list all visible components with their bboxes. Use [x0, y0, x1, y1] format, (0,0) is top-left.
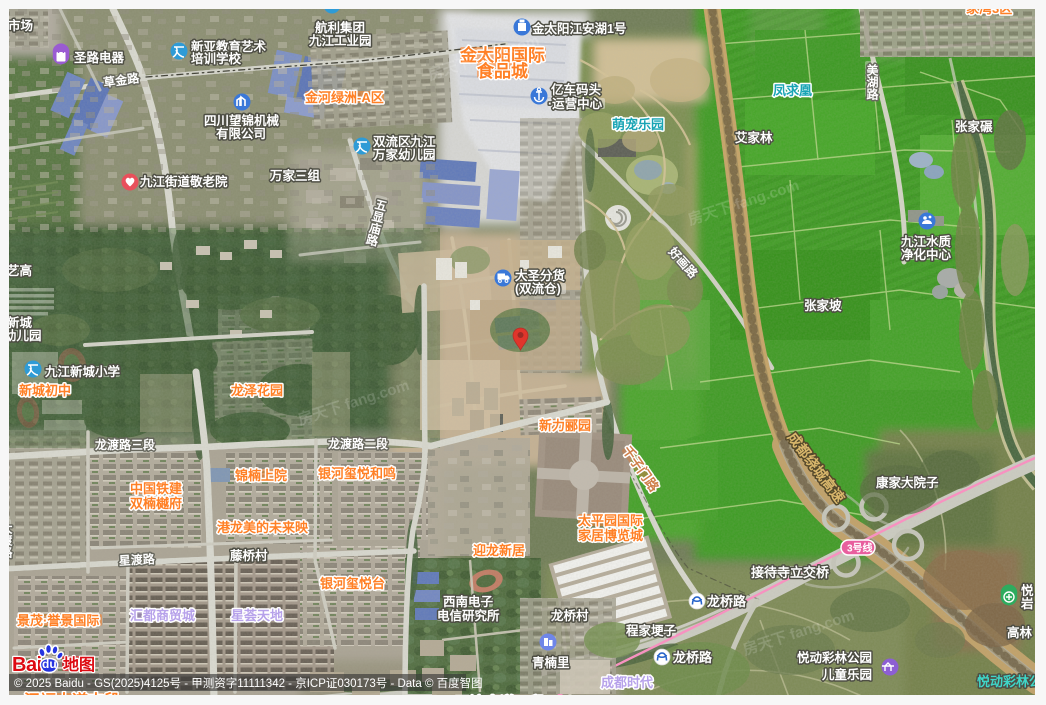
svg-text:悦动彩林公园: 悦动彩林公园 — [797, 650, 872, 665]
svg-text:艺高: 艺高 — [7, 263, 32, 278]
svg-text:藤桥村: 藤桥村 — [229, 548, 268, 563]
svg-text:新城初中: 新城初中 — [19, 383, 71, 398]
svg-text:培训学校: 培训学校 — [191, 51, 242, 66]
svg-text:张家碾: 张家碾 — [955, 119, 993, 134]
svg-text:九江水质: 九江水质 — [900, 234, 952, 249]
svg-text:星荟天地: 星荟天地 — [231, 608, 283, 623]
svg-text:地图: 地图 — [63, 655, 95, 674]
svg-text:市场: 市场 — [8, 18, 33, 33]
svg-text:九江街道敬老院: 九江街道敬老院 — [139, 174, 228, 189]
svg-text:美湖路: 美湖路 — [865, 63, 879, 101]
svg-text:亿车码头: 亿车码头 — [551, 82, 602, 97]
svg-text:幼儿园: 幼儿园 — [4, 328, 42, 343]
svg-text:锦楠上院: 锦楠上院 — [235, 468, 287, 483]
svg-text:双楠樾府: 双楠樾府 — [130, 496, 182, 511]
svg-text:中国铁建: 中国铁建 — [130, 481, 182, 496]
svg-text:净化中心: 净化中心 — [901, 247, 952, 262]
svg-text:龙桥路: 龙桥路 — [673, 650, 713, 665]
svg-text:·运营中心: ·运营中心 — [548, 96, 603, 111]
svg-text:接待寺立交桥: 接待寺立交桥 — [751, 565, 830, 580]
svg-text:龙渡路三段: 龙渡路三段 — [95, 437, 156, 452]
svg-text:九江工业园: 九江工业园 — [308, 33, 372, 48]
svg-text:九江新城小学: 九江新城小学 — [44, 364, 121, 379]
svg-text:万家幼儿园: 万家幼儿园 — [372, 147, 436, 162]
svg-text:银河玺悦台: 银河玺悦台 — [320, 576, 385, 591]
svg-text:凤求凰: 凤求凰 — [773, 83, 812, 98]
svg-text:龙渡路二段: 龙渡路二段 — [328, 436, 389, 451]
svg-text:程家埂子: 程家埂子 — [626, 623, 677, 638]
svg-text:新城: 新城 — [7, 315, 33, 330]
svg-text:龙桥村: 龙桥村 — [550, 608, 589, 623]
svg-text:du: du — [42, 657, 57, 671]
svg-text:西南电子: 西南电子 — [443, 594, 494, 609]
svg-text:汉福大道中段: 汉福大道中段 — [24, 691, 121, 705]
svg-text:大圣分货: 大圣分货 — [515, 268, 566, 283]
svg-text:青楠里: 青楠里 — [532, 655, 570, 670]
svg-text:万家三组: 万家三组 — [269, 168, 321, 183]
svg-text:星渡路: 星渡路 — [118, 551, 156, 568]
svg-text:四川望锦机械: 四川望锦机械 — [204, 113, 280, 128]
svg-text:萌宠乐园: 萌宠乐园 — [612, 117, 664, 132]
svg-text:双流区九江: 双流区九江 — [372, 134, 436, 149]
svg-text:张家坡: 张家坡 — [804, 298, 842, 313]
svg-text:悦动彩林公: 悦动彩林公 — [977, 674, 1042, 689]
svg-text:艾家林: 艾家林 — [735, 130, 773, 145]
svg-text:金河绿洲-A区: 金河绿洲-A区 — [304, 90, 384, 105]
svg-text:圣路电器: 圣路电器 — [73, 50, 125, 65]
svg-text:有限公司: 有限公司 — [216, 126, 266, 141]
svg-text:双流大道一段: 双流大道一段 — [455, 694, 545, 705]
svg-text:儿童乐园: 儿童乐园 — [821, 667, 872, 682]
svg-text:金太阳江安湖1号: 金太阳江安湖1号 — [531, 21, 626, 36]
svg-text:家湾3区: 家湾3区 — [966, 1, 1012, 16]
svg-text:岩: 岩 — [1020, 596, 1034, 611]
svg-text:Bai: Bai — [12, 654, 42, 676]
svg-text:景茂·誉景国际: 景茂·誉景国际 — [17, 613, 99, 628]
svg-text:港龙美的未来映: 港龙美的未来映 — [217, 520, 309, 535]
svg-text:高林: 高林 — [1007, 625, 1033, 640]
svg-text:新力郦园: 新力郦园 — [539, 418, 591, 433]
svg-text:大渡路: 大渡路 — [0, 521, 13, 559]
svg-text:龙桥路: 龙桥路 — [707, 594, 747, 609]
svg-text:康家大院子: 康家大院子 — [876, 475, 939, 490]
svg-text:统: 统 — [0, 117, 7, 132]
svg-text:© 2025 Baidu - GS(2025)4125号 -: © 2025 Baidu - GS(2025)4125号 - 甲测资字11111… — [14, 676, 483, 690]
svg-text:电信研究所: 电信研究所 — [437, 608, 500, 623]
svg-text:3号线: 3号线 — [847, 542, 873, 555]
svg-text:太平园国际: 太平园国际 — [577, 513, 643, 528]
svg-text:汇都商贸城: 汇都商贸城 — [130, 608, 195, 623]
svg-text:银河玺悦和鸣: 银河玺悦和鸣 — [318, 466, 396, 481]
svg-text:迎龙新居: 迎龙新居 — [473, 543, 525, 558]
svg-text:家居博览城: 家居博览城 — [578, 528, 643, 543]
svg-text:悦: 悦 — [1021, 583, 1034, 598]
svg-text:龙泽花园: 龙泽花园 — [231, 383, 283, 398]
svg-text:(双流仓): (双流仓) — [515, 281, 561, 296]
svg-text:航利集团: 航利集团 — [315, 20, 365, 35]
svg-text:成都时代: 成都时代 — [601, 675, 653, 690]
